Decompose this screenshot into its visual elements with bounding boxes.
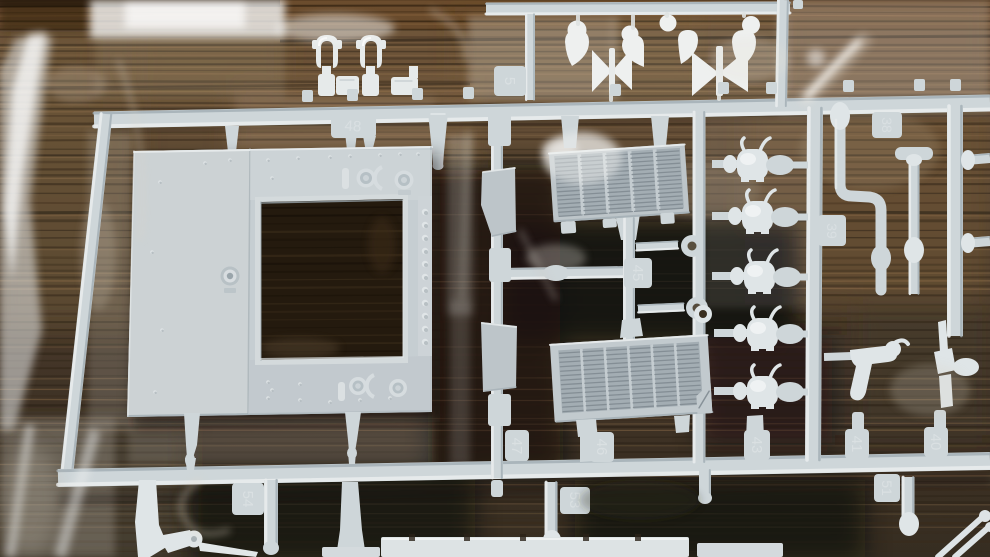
svg-text:40: 40 <box>927 434 944 451</box>
svg-text:41: 41 <box>848 436 865 453</box>
svg-text:39: 39 <box>824 223 840 239</box>
svg-text:46: 46 <box>593 439 610 456</box>
svg-text:45: 45 <box>629 265 646 282</box>
svg-text:48: 48 <box>344 117 362 135</box>
svg-text:54: 54 <box>239 491 256 508</box>
svg-text:5: 5 <box>501 77 518 85</box>
svg-text:51: 51 <box>879 480 895 496</box>
svg-text:43: 43 <box>748 437 765 454</box>
svg-text:38: 38 <box>879 117 895 133</box>
svg-text:47: 47 <box>508 438 525 455</box>
